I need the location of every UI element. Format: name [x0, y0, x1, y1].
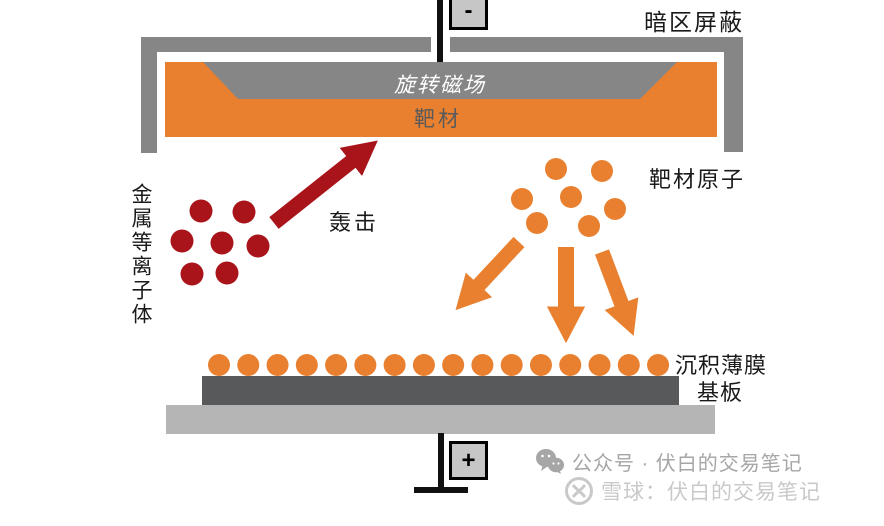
- film-dot: [354, 354, 376, 376]
- film-dot: [267, 354, 289, 376]
- deposition-arrow: [602, 252, 622, 305]
- deposition-arrow: [478, 242, 519, 286]
- target-atom-dot: [545, 158, 567, 180]
- label-rotating-magnetic-field: 旋转磁场: [370, 69, 510, 99]
- wechat-watermark: 公众号 · 伏白的交易笔记: [535, 447, 803, 476]
- plasma-ion-dot: [233, 201, 256, 224]
- xueqiu-watermark: 雪球：伏白的交易笔记: [564, 476, 821, 506]
- label-target-atoms: 靶材原子: [649, 162, 745, 194]
- film-dot: [442, 354, 464, 376]
- plasma-ion-dot: [181, 263, 204, 286]
- cathode-lead-line: [437, 0, 443, 66]
- plasma-ion-dot: [211, 232, 234, 255]
- substrate-plate: [202, 376, 679, 405]
- label-metal-plasma: 金属等离子体: [126, 183, 156, 333]
- film-dot: [559, 354, 581, 376]
- target-atom-dot: [578, 215, 600, 237]
- film-dot: [413, 354, 435, 376]
- label-substrate: 基板: [697, 375, 743, 407]
- target-atom-dot: [511, 188, 533, 210]
- film-dot: [530, 354, 552, 376]
- target-atom-dot: [560, 186, 582, 208]
- anode-lead-line: [438, 433, 444, 490]
- film-dot: [384, 354, 406, 376]
- positive-electrode-symbol: +: [461, 447, 475, 475]
- plasma-ion-cluster: [171, 200, 270, 286]
- wechat-watermark-text: 公众号 · 伏白的交易笔记: [572, 447, 803, 476]
- plasma-ion-dot: [216, 262, 239, 285]
- wechat-icon: [535, 448, 565, 476]
- plasma-ion-dot: [247, 235, 270, 258]
- positive-electrode-box: +: [449, 441, 488, 480]
- negative-electrode-symbol: -: [465, 0, 473, 25]
- film-dot: [296, 354, 318, 376]
- deposited-film-dots: [208, 354, 669, 376]
- shield-side-bar-left: [141, 37, 157, 153]
- arrow-layer: [274, 161, 622, 308]
- target-atom-dot: [591, 160, 613, 182]
- negative-electrode-box: -: [449, 0, 488, 30]
- film-dot: [208, 354, 230, 376]
- shield-top-bar-right: [450, 37, 743, 52]
- ground-bar: [414, 487, 468, 493]
- film-dot: [501, 354, 523, 376]
- sputtering-deposition-diagram: - + 暗区屏蔽 旋转磁场 靶材 靶材原子 金属等离子体 轰击 沉积薄膜 基板 …: [0, 0, 884, 526]
- film-dot: [325, 354, 347, 376]
- film-dot: [471, 354, 493, 376]
- label-dark-area-shield: 暗区屏蔽: [644, 3, 744, 37]
- shield-top-bar-left: [141, 37, 431, 52]
- target-atom-cluster: [511, 158, 626, 237]
- xueqiu-watermark-text: 雪球：伏白的交易笔记: [601, 476, 821, 506]
- film-dot: [618, 354, 640, 376]
- target-atom-dot: [604, 198, 626, 220]
- xueqiu-icon: [564, 476, 594, 506]
- shield-side-bar-right: [724, 37, 743, 152]
- substrate-holder: [166, 405, 715, 434]
- target-atom-dot: [526, 212, 548, 234]
- plasma-ion-dot: [190, 200, 213, 223]
- film-dot: [589, 354, 611, 376]
- plasma-ion-dot: [171, 230, 194, 253]
- film-dot: [647, 354, 669, 376]
- film-dot: [237, 354, 259, 376]
- label-bombardment: 轰击: [329, 205, 379, 237]
- label-target-material: 靶材: [385, 103, 491, 133]
